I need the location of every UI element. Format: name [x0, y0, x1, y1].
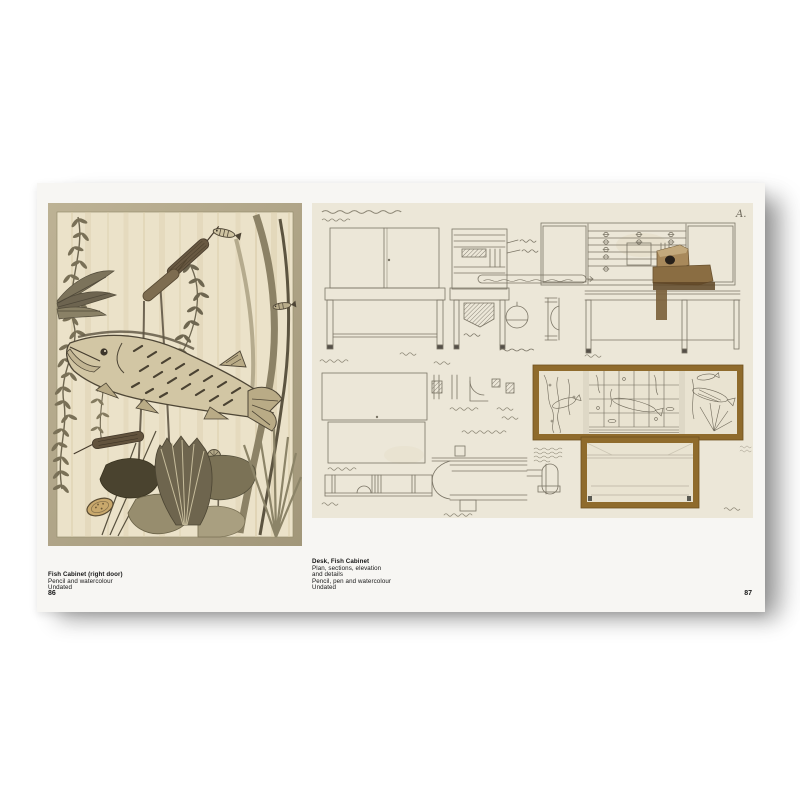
caption-right: Desk, Fish Cabinet Plan, sections, eleva…	[312, 559, 391, 592]
left-artwork-fish-painting	[48, 203, 302, 546]
book-spread: A.	[37, 183, 765, 612]
caption-left-date: Undated	[48, 585, 123, 592]
caption-right-date: Undated	[312, 585, 391, 592]
desk-drawing-svg: A.	[312, 203, 753, 518]
page-number-right: 87	[744, 590, 752, 597]
page-number-left: 86	[48, 590, 56, 597]
book-product-photo: A.	[0, 0, 800, 800]
drawing-corner-label: A.	[735, 209, 746, 220]
fish-painting-svg	[48, 203, 302, 546]
caption-left: Fish Cabinet (right door) Pencil and wat…	[48, 572, 123, 592]
right-artwork-desk-drawing: A.	[312, 203, 753, 518]
